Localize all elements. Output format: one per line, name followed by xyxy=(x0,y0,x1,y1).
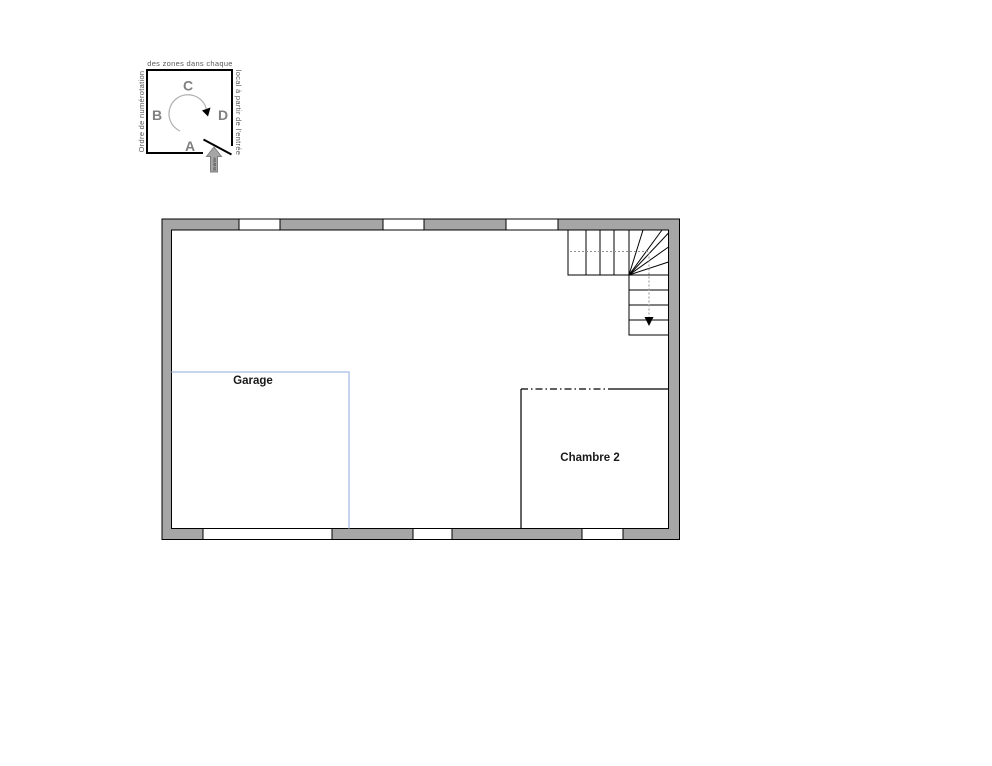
zone-letter-a: A xyxy=(185,138,195,154)
floor-plan-canvas: des zones dans chaque Ordre de numérotat… xyxy=(0,0,992,766)
entrance-arrow-label: Entrée xyxy=(212,157,217,171)
rotation-arc xyxy=(169,95,206,131)
zone-letter-d: D xyxy=(218,107,228,123)
legend-diagram: des zones dans chaque Ordre de numérotat… xyxy=(137,59,243,172)
garage-outline xyxy=(172,372,350,529)
floor-plan: Garage Chambre 2 xyxy=(162,219,680,540)
staircase xyxy=(568,230,669,335)
zone-letter-c: C xyxy=(183,78,193,94)
window-bottom-2 xyxy=(582,529,623,540)
legend-caption-top: des zones dans chaque xyxy=(147,59,233,68)
room-label-garage: Garage xyxy=(233,375,273,387)
stair-upper-flight xyxy=(568,230,669,275)
legend-caption-right: local à partir de l'entrée xyxy=(234,70,243,156)
floor-plan-page: des zones dans chaque Ordre de numérotat… xyxy=(0,0,992,766)
garage-door-opening xyxy=(203,529,332,540)
room-label-chambre2: Chambre 2 xyxy=(560,452,619,464)
window-top-1 xyxy=(239,219,280,230)
window-top-3 xyxy=(506,219,558,230)
legend-caption-left: Ordre de numérotation xyxy=(137,71,146,153)
zone-letter-b: B xyxy=(152,107,162,123)
window-top-2 xyxy=(383,219,424,230)
window-bottom-1 xyxy=(413,529,452,540)
